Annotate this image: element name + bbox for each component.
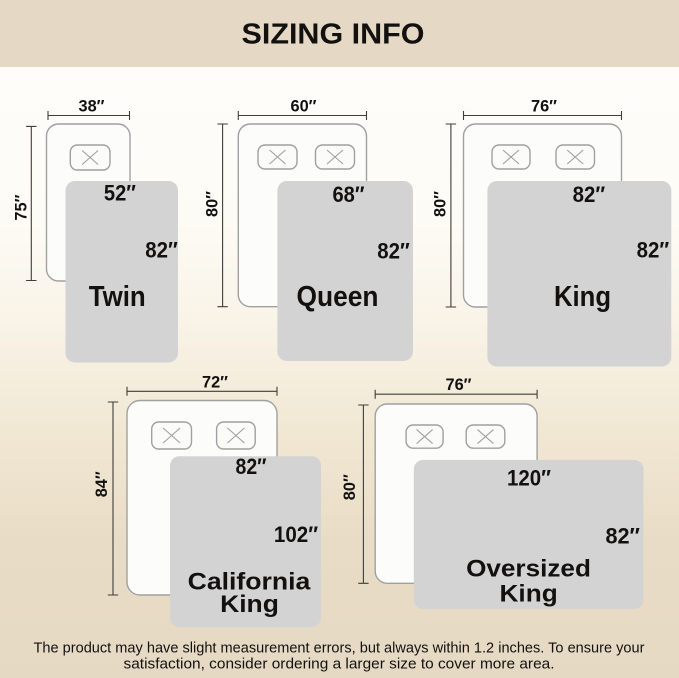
svg-text:38″: 38″ xyxy=(79,98,105,116)
svg-text:82″: 82″ xyxy=(145,238,178,263)
svg-text:52″: 52″ xyxy=(104,181,136,206)
svg-text:Twin: Twin xyxy=(89,281,146,313)
svg-text:King: King xyxy=(220,591,279,618)
svg-text:SIZING INFO: SIZING INFO xyxy=(242,19,425,51)
svg-text:The product may have slight me: The product may have slight measurement … xyxy=(34,640,645,656)
svg-text:82″: 82″ xyxy=(573,182,606,207)
svg-text:satisfaction, consider orderin: satisfaction, consider ordering a larger… xyxy=(124,657,555,673)
svg-text:84″: 84″ xyxy=(93,471,111,497)
svg-text:Oversized: Oversized xyxy=(466,555,591,582)
svg-text:68″: 68″ xyxy=(333,182,365,207)
svg-text:120″: 120″ xyxy=(507,465,551,490)
svg-text:King: King xyxy=(500,580,558,607)
svg-text:82″: 82″ xyxy=(377,238,410,263)
svg-text:75″: 75″ xyxy=(12,195,30,221)
svg-text:82″: 82″ xyxy=(637,238,670,263)
svg-text:80″: 80″ xyxy=(432,191,450,217)
svg-text:King: King xyxy=(554,281,611,313)
svg-text:76″: 76″ xyxy=(531,98,557,116)
svg-text:80″: 80″ xyxy=(203,191,221,217)
svg-text:82″: 82″ xyxy=(605,524,640,549)
svg-text:102″: 102″ xyxy=(274,522,318,547)
svg-text:80″: 80″ xyxy=(341,474,359,500)
svg-text:72″: 72″ xyxy=(202,374,228,392)
svg-text:60″: 60″ xyxy=(291,98,317,116)
svg-text:76″: 76″ xyxy=(446,376,472,394)
svg-text:82″: 82″ xyxy=(236,454,267,479)
svg-text:Queen: Queen xyxy=(297,281,379,313)
